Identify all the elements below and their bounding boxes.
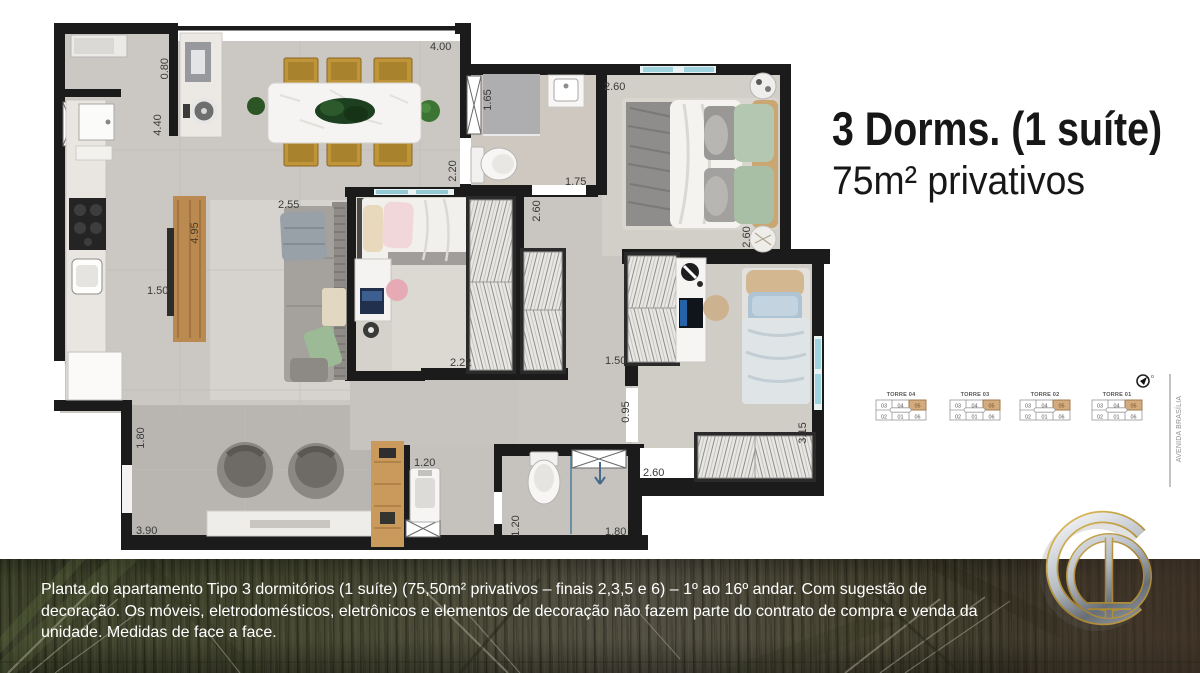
svg-text:4.00: 4.00 — [430, 41, 451, 53]
svg-text:3.90: 3.90 — [136, 525, 157, 537]
svg-text:o: o — [1151, 374, 1154, 380]
svg-text:1.80: 1.80 — [135, 427, 147, 448]
svg-text:1.20: 1.20 — [510, 515, 522, 536]
svg-text:2.55: 2.55 — [278, 199, 299, 211]
svg-text:2.60: 2.60 — [531, 200, 543, 221]
svg-text:1.75: 1.75 — [565, 176, 586, 188]
svg-text:TORRE 04: TORRE 04 — [887, 392, 917, 398]
svg-text:4.40: 4.40 — [152, 114, 164, 135]
svg-text:2.22: 2.22 — [450, 357, 471, 369]
svg-text:2.60: 2.60 — [604, 81, 625, 93]
svg-text:0.80: 0.80 — [159, 58, 171, 79]
svg-text:1.65: 1.65 — [482, 89, 494, 110]
svg-text:2.60: 2.60 — [643, 467, 664, 479]
svg-text:1.50: 1.50 — [147, 285, 168, 297]
svg-text:2.20: 2.20 — [447, 160, 459, 181]
svg-text:1.20: 1.20 — [414, 457, 435, 469]
svg-text:AVENIDA BRASÍLIA: AVENIDA BRASÍLIA — [1174, 396, 1183, 463]
svg-text:1.80: 1.80 — [605, 526, 626, 538]
svg-text:4.95: 4.95 — [189, 222, 201, 243]
svg-text:1.50: 1.50 — [605, 355, 626, 367]
svg-text:3.15: 3.15 — [797, 422, 809, 443]
svg-text:TORRE 03: TORRE 03 — [961, 392, 990, 398]
svg-text:2.60: 2.60 — [741, 226, 753, 247]
svg-text:TORRE 02: TORRE 02 — [1031, 392, 1060, 398]
svg-text:0.95: 0.95 — [620, 401, 632, 422]
svg-text:TORRE 01: TORRE 01 — [1103, 392, 1132, 398]
